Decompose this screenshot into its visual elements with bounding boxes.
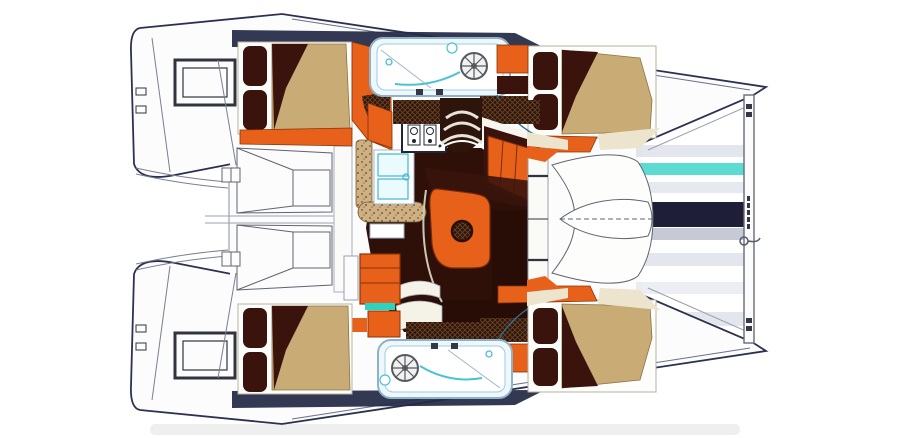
beam-fitting-icon	[746, 104, 752, 109]
port-head	[370, 38, 510, 96]
galley-cabinet-low	[368, 311, 400, 337]
pillow	[243, 352, 267, 392]
sink-basin	[378, 179, 408, 199]
head-fitting-icon	[436, 89, 443, 95]
galley-counter-curve	[358, 202, 426, 222]
galley-teal-fitting	[365, 303, 395, 310]
port-step-icon	[136, 106, 146, 113]
beam-label-marks	[747, 196, 750, 229]
port-stern-hatch	[175, 60, 235, 105]
starboard-head	[378, 340, 512, 398]
pillow	[533, 52, 558, 90]
pillow	[243, 90, 267, 130]
catamaran-floorplan	[0, 0, 900, 438]
pillow	[533, 348, 558, 386]
knob-icon	[412, 139, 416, 143]
beam-fitting-icon	[746, 326, 752, 331]
table-centerpiece-icon	[452, 221, 472, 241]
starboard-step-icon	[136, 325, 146, 332]
galley-counter-vertical	[356, 140, 372, 208]
starboard-step-icon	[136, 343, 146, 350]
starboard-aft-cabin	[238, 304, 352, 394]
sink-basin	[378, 154, 408, 176]
beam-fitting-icon	[746, 112, 752, 117]
sink-bowl-icon	[380, 375, 390, 385]
galley-cabinet	[370, 224, 404, 238]
boat-shadow	[150, 424, 740, 435]
sink-bowl-icon	[447, 43, 457, 53]
beam-fitting-icon	[746, 318, 752, 323]
port-aft-bed-foot-step	[240, 128, 352, 146]
port-aft-cabin	[238, 42, 352, 146]
wheel-hub-icon	[471, 63, 477, 69]
galley-fridge	[360, 254, 400, 304]
port-step-icon	[136, 88, 146, 95]
head-fitting-icon	[416, 89, 423, 95]
pillow	[243, 46, 267, 86]
pillow	[243, 308, 267, 348]
stove	[402, 120, 446, 152]
knob-icon	[428, 139, 432, 143]
wheel-hub-icon	[402, 365, 408, 371]
port-fwd-cabinet	[497, 45, 528, 73]
starboard-stern-hatch	[175, 333, 235, 378]
cockpit-bench-port-seat	[293, 170, 330, 206]
floorplan-drawing	[0, 0, 900, 438]
stbd-fwd-wardrobe	[480, 318, 528, 342]
cockpit-bench-starboard-seat	[293, 232, 330, 268]
pillow	[533, 308, 558, 344]
port-fwd-locker	[497, 76, 528, 94]
galley-locker	[344, 256, 358, 300]
orange-trim	[350, 318, 367, 332]
head-fitting-icon	[431, 343, 438, 349]
saloon-aft-counter-hatch	[393, 100, 442, 124]
head-fitting-icon	[451, 343, 458, 349]
